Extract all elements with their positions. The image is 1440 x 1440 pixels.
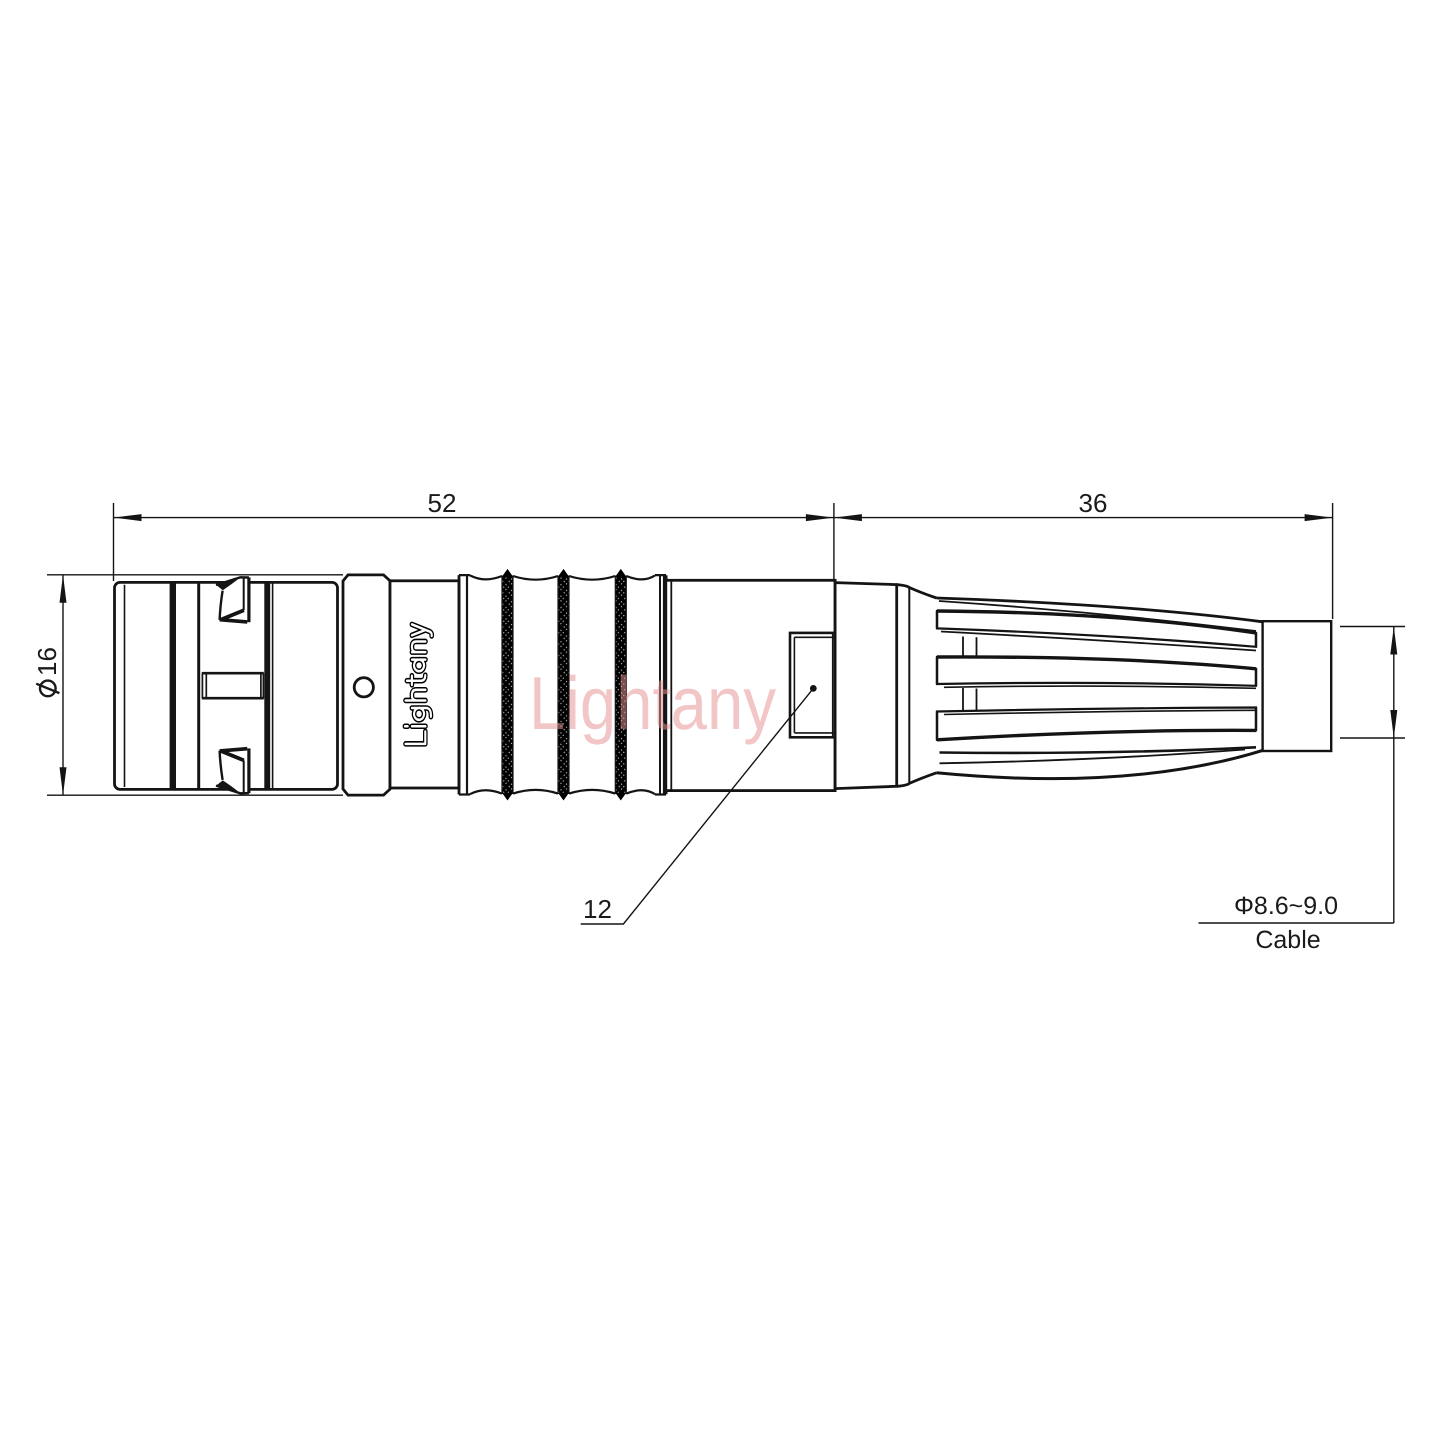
svg-text:Lightany: Lightany <box>529 661 776 745</box>
svg-text:Φ8.6~9.0: Φ8.6~9.0 <box>1234 892 1338 920</box>
svg-text:52: 52 <box>428 488 457 518</box>
svg-text:Cable: Cable <box>1255 926 1320 954</box>
svg-text:36: 36 <box>1079 488 1108 518</box>
svg-text:12: 12 <box>583 894 612 924</box>
svg-text:16: 16 <box>32 647 62 676</box>
